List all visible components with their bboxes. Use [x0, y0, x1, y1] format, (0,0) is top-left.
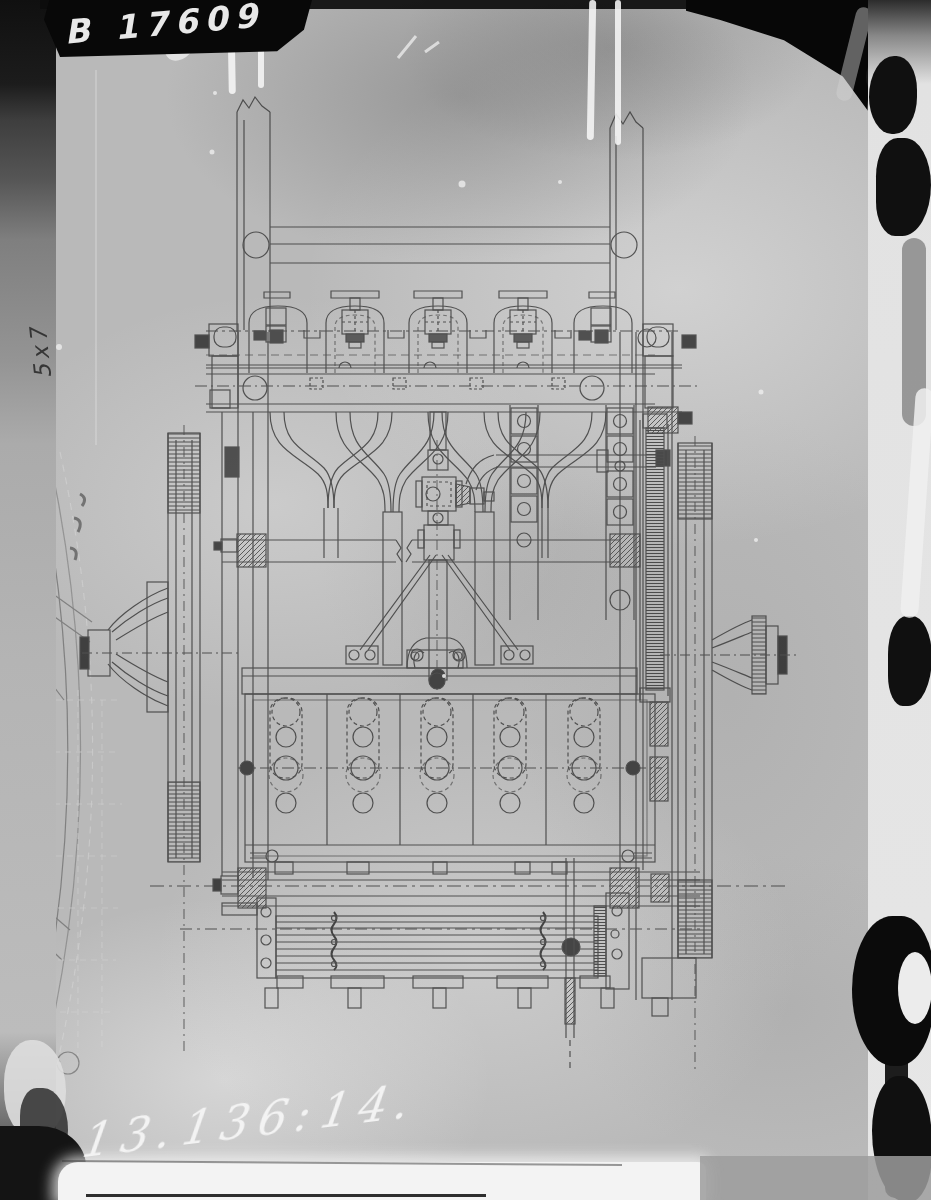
machine-technical-drawing [0, 0, 931, 1200]
right-wheel [660, 436, 800, 1072]
glass-plate-negative-photo: B 17609 5x7 13.136:14. [0, 0, 931, 1200]
edge-blob-highlight [898, 952, 931, 1024]
a-frame-support [346, 555, 533, 683]
bottom-right-gray-band [700, 1156, 931, 1200]
white-streak [615, 0, 621, 145]
mid-cross-beam [214, 534, 640, 567]
left-rail-bracket [195, 324, 239, 477]
drawbar-beams [237, 97, 643, 332]
main-rail [195, 362, 700, 412]
bottom-black-line [86, 1194, 486, 1197]
hopper-cell-holes [269, 698, 601, 813]
left-plate-edge [0, 0, 56, 1200]
frame-side-rails [222, 332, 696, 1016]
bolt-pad-columns [510, 405, 634, 620]
edge-blob [869, 56, 917, 134]
edge-blob [888, 616, 931, 706]
seed-hopper [238, 650, 662, 874]
size-note-text: 5x7 [25, 323, 57, 380]
